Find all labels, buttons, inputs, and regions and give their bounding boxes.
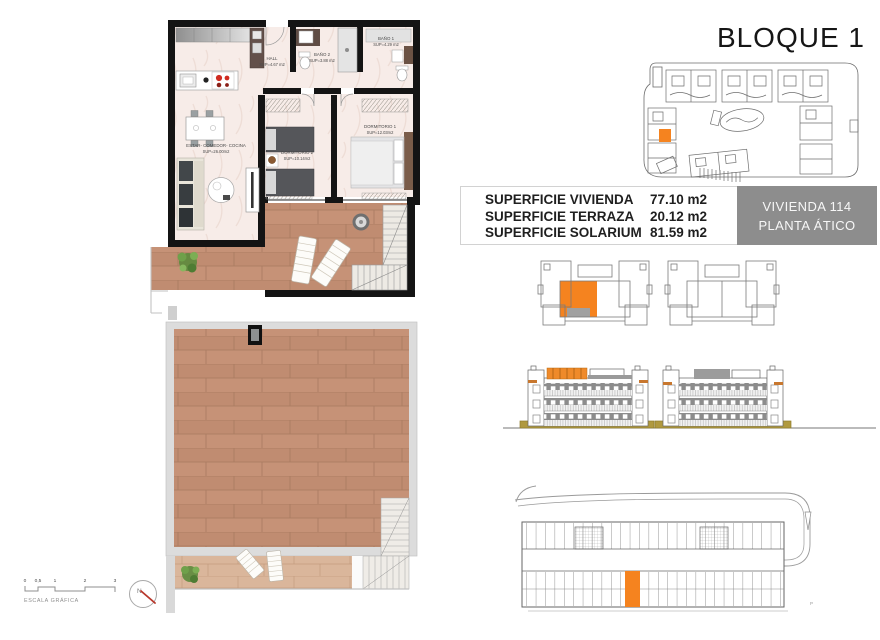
elevations — [503, 366, 876, 428]
page-title: BLOQUE 1 — [640, 22, 865, 54]
svg-text:0,5: 0,5 — [35, 578, 42, 584]
site-plan — [644, 63, 858, 182]
parking-plan: P — [515, 486, 813, 611]
scale-bar: 0 0,5 1 2 3 ESCALA GRÁFICA — [24, 578, 117, 604]
parking-highlight — [625, 571, 640, 607]
north-compass: N — [130, 581, 157, 608]
kitchen-island — [176, 71, 238, 90]
site-plan-highlight — [659, 129, 671, 142]
unit-badge-line1: VIVIENDA 114 — [737, 197, 877, 216]
svg-text:SUP=4.29 m2: SUP=4.29 m2 — [373, 42, 399, 47]
surface-value: 20.12 m2 — [650, 209, 737, 226]
sofa — [177, 158, 204, 230]
svg-text:SUP=10.14m2: SUP=10.14m2 — [284, 156, 311, 161]
stair-core-1 — [575, 527, 603, 549]
svg-text:SUP=12.03m2: SUP=12.03m2 — [367, 130, 394, 135]
svg-text:ESTAR- COMEDOR- COCINA: ESTAR- COMEDOR- COCINA — [186, 143, 246, 148]
unit-badge-line2: PLANTA ÁTICO — [737, 216, 877, 235]
surface-label: SUPERFICIE VIVIENDA — [461, 192, 650, 209]
svg-text:DORMITORIO 1: DORMITORIO 1 — [364, 124, 397, 129]
solarium-plan — [166, 306, 417, 613]
elevation-highlight — [547, 368, 587, 379]
svg-text:1: 1 — [54, 578, 57, 584]
solarium-chimney — [248, 325, 262, 345]
svg-text:SUP=26.00m2: SUP=26.00m2 — [203, 149, 230, 154]
svg-text:BAÑO 2: BAÑO 2 — [314, 52, 331, 57]
surface-value: 77.10 m2 — [650, 192, 737, 209]
surface-label: SUPERFICIE TERRAZA — [461, 209, 650, 226]
solarium-lower-stairs — [363, 556, 409, 589]
svg-text:BAÑO 1: BAÑO 1 — [378, 36, 395, 41]
surface-row-vivienda: SUPERFICIE VIVIENDA 77.10 m2 — [461, 192, 737, 209]
coffee-table — [208, 178, 234, 203]
surface-value: 81.59 m2 — [650, 225, 737, 242]
key-plan-highlight — [560, 281, 597, 308]
svg-text:SUP=4.67 m2: SUP=4.67 m2 — [259, 62, 285, 67]
svg-text:2: 2 — [84, 578, 87, 584]
svg-text:SUP=3.88 m2: SUP=3.88 m2 — [309, 58, 335, 63]
cooktop — [212, 72, 234, 89]
key-plan-terrace — [567, 308, 590, 317]
svg-text:0: 0 — [24, 578, 27, 584]
surface-label: SUPERFICIE SOLARIUM — [461, 225, 650, 242]
unit-badge: VIVIENDA 114 PLANTA ÁTICO — [737, 186, 877, 245]
apartment-floor-plan: HALL SUP=4.67 m2 BAÑO 2 SUP=3.88 m2 BAÑO… — [151, 20, 420, 313]
key-plan-right — [665, 261, 779, 325]
terrace-plant — [178, 252, 199, 273]
terrace-side-table — [353, 214, 370, 231]
elevation-left — [520, 366, 654, 428]
surface-row-terraza: SUPERFICIE TERRAZA 20.12 m2 — [461, 209, 737, 226]
surface-table: SUPERFICIE VIVIENDA 77.10 m2 SUPERFICIE … — [460, 186, 737, 245]
solarium-upper-stairs — [381, 498, 409, 556]
stair-core-2 — [700, 527, 728, 549]
svg-text:DORMITORIO 2: DORMITORIO 2 — [281, 150, 314, 155]
solarium-lounger-2 — [266, 550, 283, 581]
svg-text:3: 3 — [114, 578, 117, 584]
parking-building — [522, 522, 788, 611]
svg-text:P: P — [810, 601, 813, 606]
elevation-right — [655, 366, 791, 428]
surface-row-solarium: SUPERFICIE SOLARIUM 81.59 m2 — [461, 225, 737, 242]
plan-sheet: HALL SUP=4.67 m2 BAÑO 2 SUP=3.88 m2 BAÑO… — [0, 0, 880, 640]
svg-text:ESCALA GRÁFICA: ESCALA GRÁFICA — [24, 597, 79, 604]
key-plan-left — [538, 261, 652, 325]
svg-text:HALL: HALL — [267, 56, 279, 61]
drawings-canvas: HALL SUP=4.67 m2 BAÑO 2 SUP=3.88 m2 BAÑO… — [0, 0, 880, 640]
